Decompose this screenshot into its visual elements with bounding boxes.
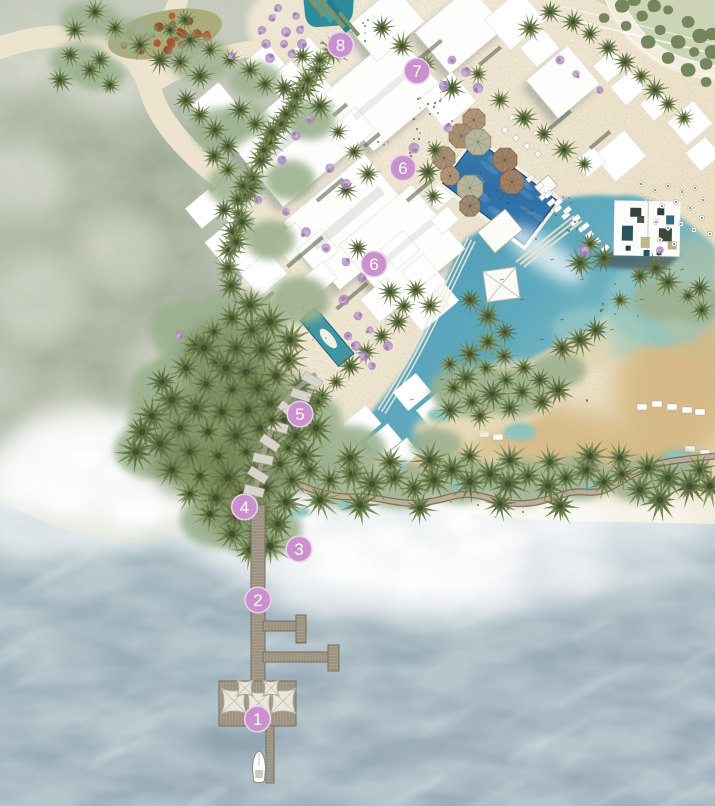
svg-text:6: 6 — [398, 159, 407, 178]
svg-text:6: 6 — [369, 255, 378, 274]
svg-text:7: 7 — [412, 62, 421, 81]
svg-text:4: 4 — [240, 498, 249, 517]
svg-text:5: 5 — [295, 405, 304, 424]
svg-text:8: 8 — [336, 36, 345, 55]
svg-text:2: 2 — [253, 591, 262, 610]
svg-text:1: 1 — [253, 710, 262, 729]
svg-text:3: 3 — [294, 540, 303, 559]
